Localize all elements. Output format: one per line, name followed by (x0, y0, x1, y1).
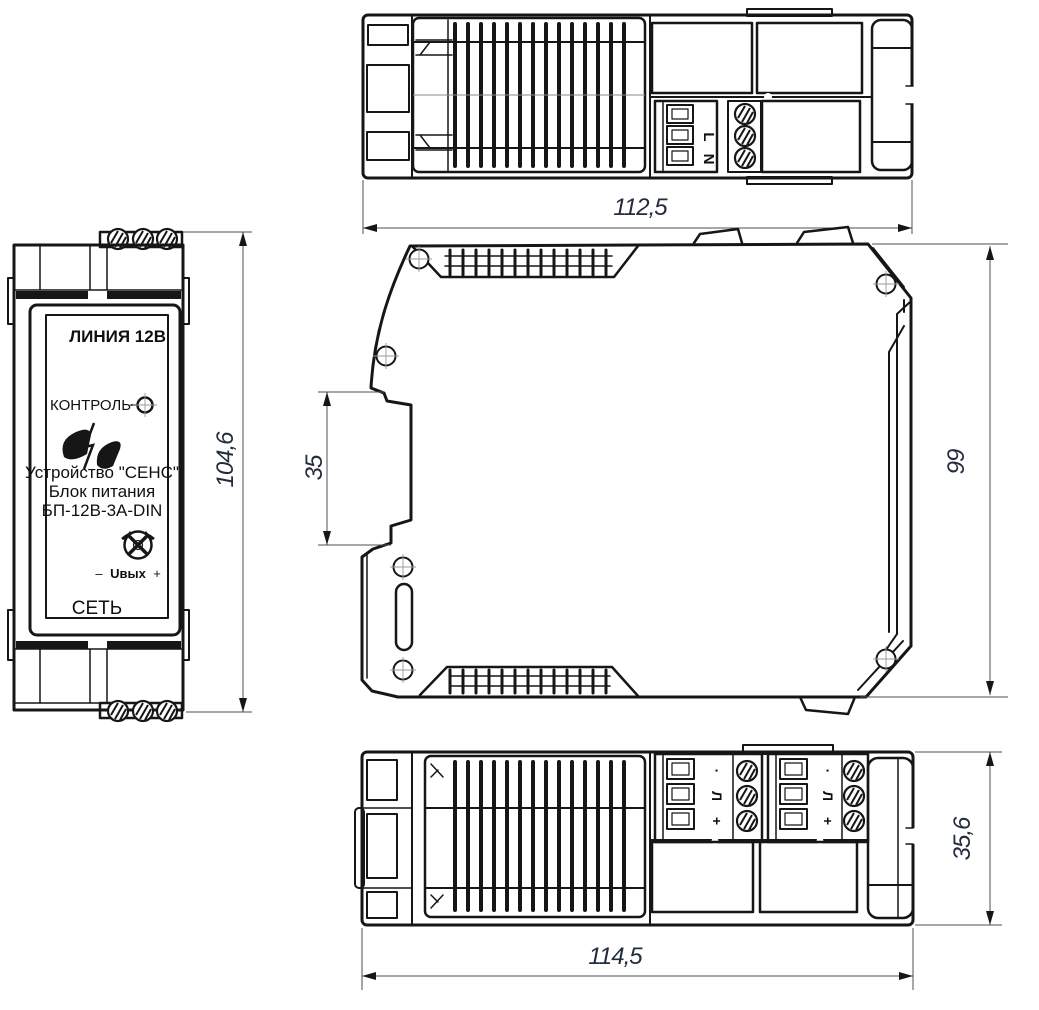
terminal-slot-inner (785, 788, 802, 800)
bottom-view-body: · Л + · Л + (355, 745, 916, 925)
dim-text-din-rail: 35 (301, 454, 328, 480)
terminal-slot (667, 759, 694, 779)
terminal-slot-inner (785, 813, 802, 825)
terminal-label-plus: + (709, 817, 725, 825)
end-cap-notch (906, 828, 916, 844)
terminal-label-plus: + (820, 817, 836, 825)
dimension-lines (318, 392, 391, 545)
terminal-slot-inner (672, 763, 689, 775)
din-latch-slot (367, 132, 409, 160)
dim-text-side-height: 99 (943, 449, 970, 474)
terminal-screw-icon (844, 786, 864, 806)
terminal-screw-icon (735, 104, 755, 124)
case-screw-icon (406, 246, 432, 272)
terminal-screw-icon (735, 126, 755, 146)
dimension-height-104-6: 104,6 (183, 232, 252, 712)
terminal-cover-flap (760, 842, 857, 912)
terminal-screw-icon (844, 811, 864, 831)
arrow-down-icon (986, 911, 994, 925)
top-vent-band (413, 246, 638, 277)
din-latch-slot (367, 892, 397, 918)
terminal-cover-flap (652, 842, 753, 912)
din-latch-slot (367, 760, 397, 800)
din-latch-slot (368, 25, 408, 45)
arrow-down-icon (239, 698, 247, 712)
body-outline (362, 244, 911, 697)
terminal-cover-left (652, 23, 752, 93)
bottom-view: · Л + · Л + (350, 740, 1039, 1010)
mains-terminal-block: L N (655, 101, 761, 172)
arrow-up-icon (986, 752, 994, 766)
terminal-label-line: Л (820, 791, 836, 801)
bottom-latch-tab (800, 697, 855, 714)
top-view-body: L N (363, 9, 916, 184)
terminal-screw-icon (157, 701, 177, 721)
label-line-12v: ЛИНИЯ 12В (69, 327, 166, 346)
arrow-up-icon (986, 246, 994, 260)
terminal-screw-icon (737, 761, 757, 781)
terminal-slot (667, 147, 693, 165)
terminal-slot (667, 126, 693, 144)
terminal-label-line: Л (709, 791, 725, 801)
bottom-seam-strip (16, 641, 181, 649)
front-view: ЛИНИЯ 12В КОНТРОЛЬ Устройство "СЕНС" Бло… (0, 220, 270, 740)
terminal-screw-icon (735, 148, 755, 168)
top-view: L N 112,5 (350, 0, 1039, 250)
dim-text-front-height: 104,6 (212, 431, 239, 488)
terminal-cover-flap (762, 101, 860, 172)
technical-drawing-page: L N 112,5 ЛИНИЯ 12В КОНТРОЛЬ (0, 0, 1039, 1010)
label-net: СЕТЬ (72, 598, 122, 619)
din-clip-slot (396, 584, 412, 650)
label-uout-plus: + (153, 566, 161, 581)
side-body (362, 227, 911, 714)
label-uout: Uвых (110, 566, 146, 581)
arrow-up-icon (239, 232, 247, 246)
terminal-slot (667, 105, 693, 123)
terminal-slot (667, 809, 694, 829)
rear-wall-lines (858, 248, 910, 690)
dimension-din-rail-35: 35 (301, 392, 391, 545)
side-view: 35 99 (300, 222, 1039, 722)
top-seam-strip (16, 291, 181, 299)
bottom-vent-slats (450, 670, 606, 693)
terminal-label-l: L (700, 132, 717, 141)
phillips-screw-icon (122, 531, 154, 559)
dimension-depth-35-6: 35,6 (915, 752, 1002, 925)
terminal-cover-right (757, 23, 862, 93)
terminal-slot-inner (672, 788, 689, 800)
case-screw-icon (390, 554, 416, 580)
dimension-lines (860, 244, 1008, 697)
terminal-slot-inner (672, 813, 689, 825)
din-latch-window (367, 814, 397, 878)
body-outline (362, 752, 913, 925)
terminal-slot-inner (672, 109, 688, 119)
terminal-screw-icon (737, 811, 757, 831)
label-model: БП-12В-3А-DIN (42, 501, 163, 520)
terminal-screw-icon (108, 701, 128, 721)
terminal-slot (780, 784, 807, 804)
latch-band-lines (362, 808, 412, 888)
arrow-up-icon (323, 392, 331, 406)
dim-text-bottom-depth: 35,6 (949, 816, 976, 860)
case-screw-icon (390, 657, 416, 683)
terminal-slot (780, 809, 807, 829)
top-latch-tabs (694, 227, 853, 243)
top-band-lines (14, 245, 183, 290)
din-latch-window (367, 65, 409, 112)
terminal-label-dot: · (709, 769, 725, 774)
arrow-down-icon (323, 531, 331, 545)
label-device: Устройство "СЕНС" (25, 463, 179, 482)
terminal-screw-icon (133, 701, 153, 721)
top-vent-slats (450, 250, 606, 275)
output-terminal-block-2: · Л + (768, 754, 868, 842)
terminal-screw-icon (844, 761, 864, 781)
terminal-slot-inner (785, 763, 802, 775)
bottom-vent-rails (450, 676, 610, 686)
dim-text-bottom-width: 114,5 (588, 943, 643, 970)
label-uout-minus: – (95, 566, 103, 581)
terminal-slot-inner (672, 130, 688, 140)
terminal-screw-icon (737, 786, 757, 806)
label-block: Блок питания (49, 482, 156, 501)
output-terminal-block-1: · Л + (655, 754, 762, 842)
arrow-down-icon (986, 681, 994, 695)
front-body: ЛИНИЯ 12В КОНТРОЛЬ Устройство "СЕНС" Бло… (8, 229, 189, 721)
grille-corner-marks (431, 764, 443, 908)
terminal-label-n: N (700, 154, 717, 165)
end-cap-notch (906, 86, 916, 104)
arrow-right-icon (899, 972, 913, 980)
led-indicator-icon (133, 393, 157, 417)
bottom-band-lines (14, 649, 183, 703)
dim-text-top-width: 112,5 (613, 194, 668, 221)
label-control: КОНТРОЛЬ (50, 397, 131, 414)
arrow-left-icon (362, 972, 376, 980)
terminal-label-dot: · (820, 769, 836, 774)
terminal-slot (780, 759, 807, 779)
terminal-slot (667, 784, 694, 804)
dimension-width-114-5: 114,5 (362, 928, 913, 990)
dimension-height-99: 99 (860, 244, 1008, 697)
terminal-slot-inner (672, 151, 688, 161)
